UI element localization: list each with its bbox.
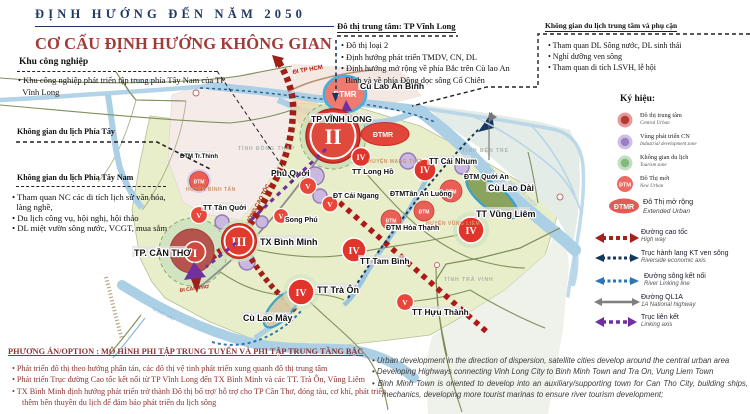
svg-text:II: II bbox=[324, 124, 341, 149]
svg-text:TỈNH TRÀ VINH: TỈNH TRÀ VINH bbox=[444, 276, 494, 283]
svg-text:ĐTM: ĐTM bbox=[386, 219, 397, 225]
svg-text:IV: IV bbox=[357, 153, 366, 162]
svg-text:Cù Lao Mây: Cù Lao Mây bbox=[243, 313, 292, 323]
svg-text:TT Long Hồ: TT Long Hồ bbox=[352, 167, 394, 176]
svg-text:ĐTMR: ĐTMR bbox=[614, 204, 634, 211]
svg-text:V: V bbox=[327, 200, 333, 209]
svg-text:IV: IV bbox=[295, 288, 307, 299]
svg-text:V: V bbox=[196, 211, 202, 220]
svg-text:TX Bình Minh: TX Bình Minh bbox=[260, 237, 318, 247]
svg-text:V: V bbox=[305, 182, 311, 191]
svg-text:IV: IV bbox=[420, 165, 431, 175]
svg-text:TP. CẦN THƠ: TP. CẦN THƠ bbox=[134, 248, 191, 258]
svg-text:V: V bbox=[402, 298, 408, 307]
svg-text:HUYỆN VŨNG LIÊM: HUYỆN VŨNG LIÊM bbox=[426, 219, 480, 227]
svg-text:Song Phú: Song Phú bbox=[285, 217, 318, 224]
svg-text:TT Vũng Liêm: TT Vũng Liêm bbox=[476, 209, 536, 219]
svg-text:ĐTM Tr.Thình: ĐTM Tr.Thình bbox=[180, 154, 218, 160]
svg-text:ĐTM: ĐTM bbox=[194, 180, 205, 186]
svg-text:TP VĨNH LONG: TP VĨNH LONG bbox=[311, 114, 372, 124]
svg-text:TT Hựu Thành: TT Hựu Thành bbox=[412, 307, 469, 317]
svg-text:ĐT Cái Ngang: ĐT Cái Ngang bbox=[333, 193, 379, 200]
svg-text:TT Tân Quới: TT Tân Quới bbox=[203, 203, 246, 212]
svg-text:ĐTMTân An Luông: ĐTMTân An Luông bbox=[390, 191, 452, 198]
svg-text:V: V bbox=[278, 213, 283, 221]
svg-text:HUYỆN BÌNH TÂN: HUYỆN BÌNH TÂN bbox=[186, 185, 236, 193]
svg-text:ĐTMR: ĐTMR bbox=[373, 132, 393, 139]
svg-text:HUYỆN MANG THÍT: HUYỆN MANG THÍT bbox=[368, 157, 422, 165]
svg-text:TT Tam Bình: TT Tam Bình bbox=[360, 256, 410, 266]
svg-text:ĐTM Quới An: ĐTM Quới An bbox=[464, 174, 509, 181]
svg-text:TT Trà Ôn: TT Trà Ôn bbox=[317, 284, 359, 295]
svg-text:TỈNH ĐỒNG THÁP: TỈNH ĐỒNG THÁP bbox=[238, 145, 295, 152]
svg-text:ĐTM: ĐTM bbox=[419, 210, 430, 216]
svg-text:TỈNH BẾN TRE: TỈNH BẾN TRE bbox=[462, 147, 509, 154]
svg-text:I: I bbox=[193, 246, 198, 260]
svg-text:IV: IV bbox=[465, 226, 477, 237]
svg-text:ĐTM: ĐTM bbox=[619, 183, 631, 189]
svg-text:TT Cái Nhum: TT Cái Nhum bbox=[429, 157, 477, 166]
